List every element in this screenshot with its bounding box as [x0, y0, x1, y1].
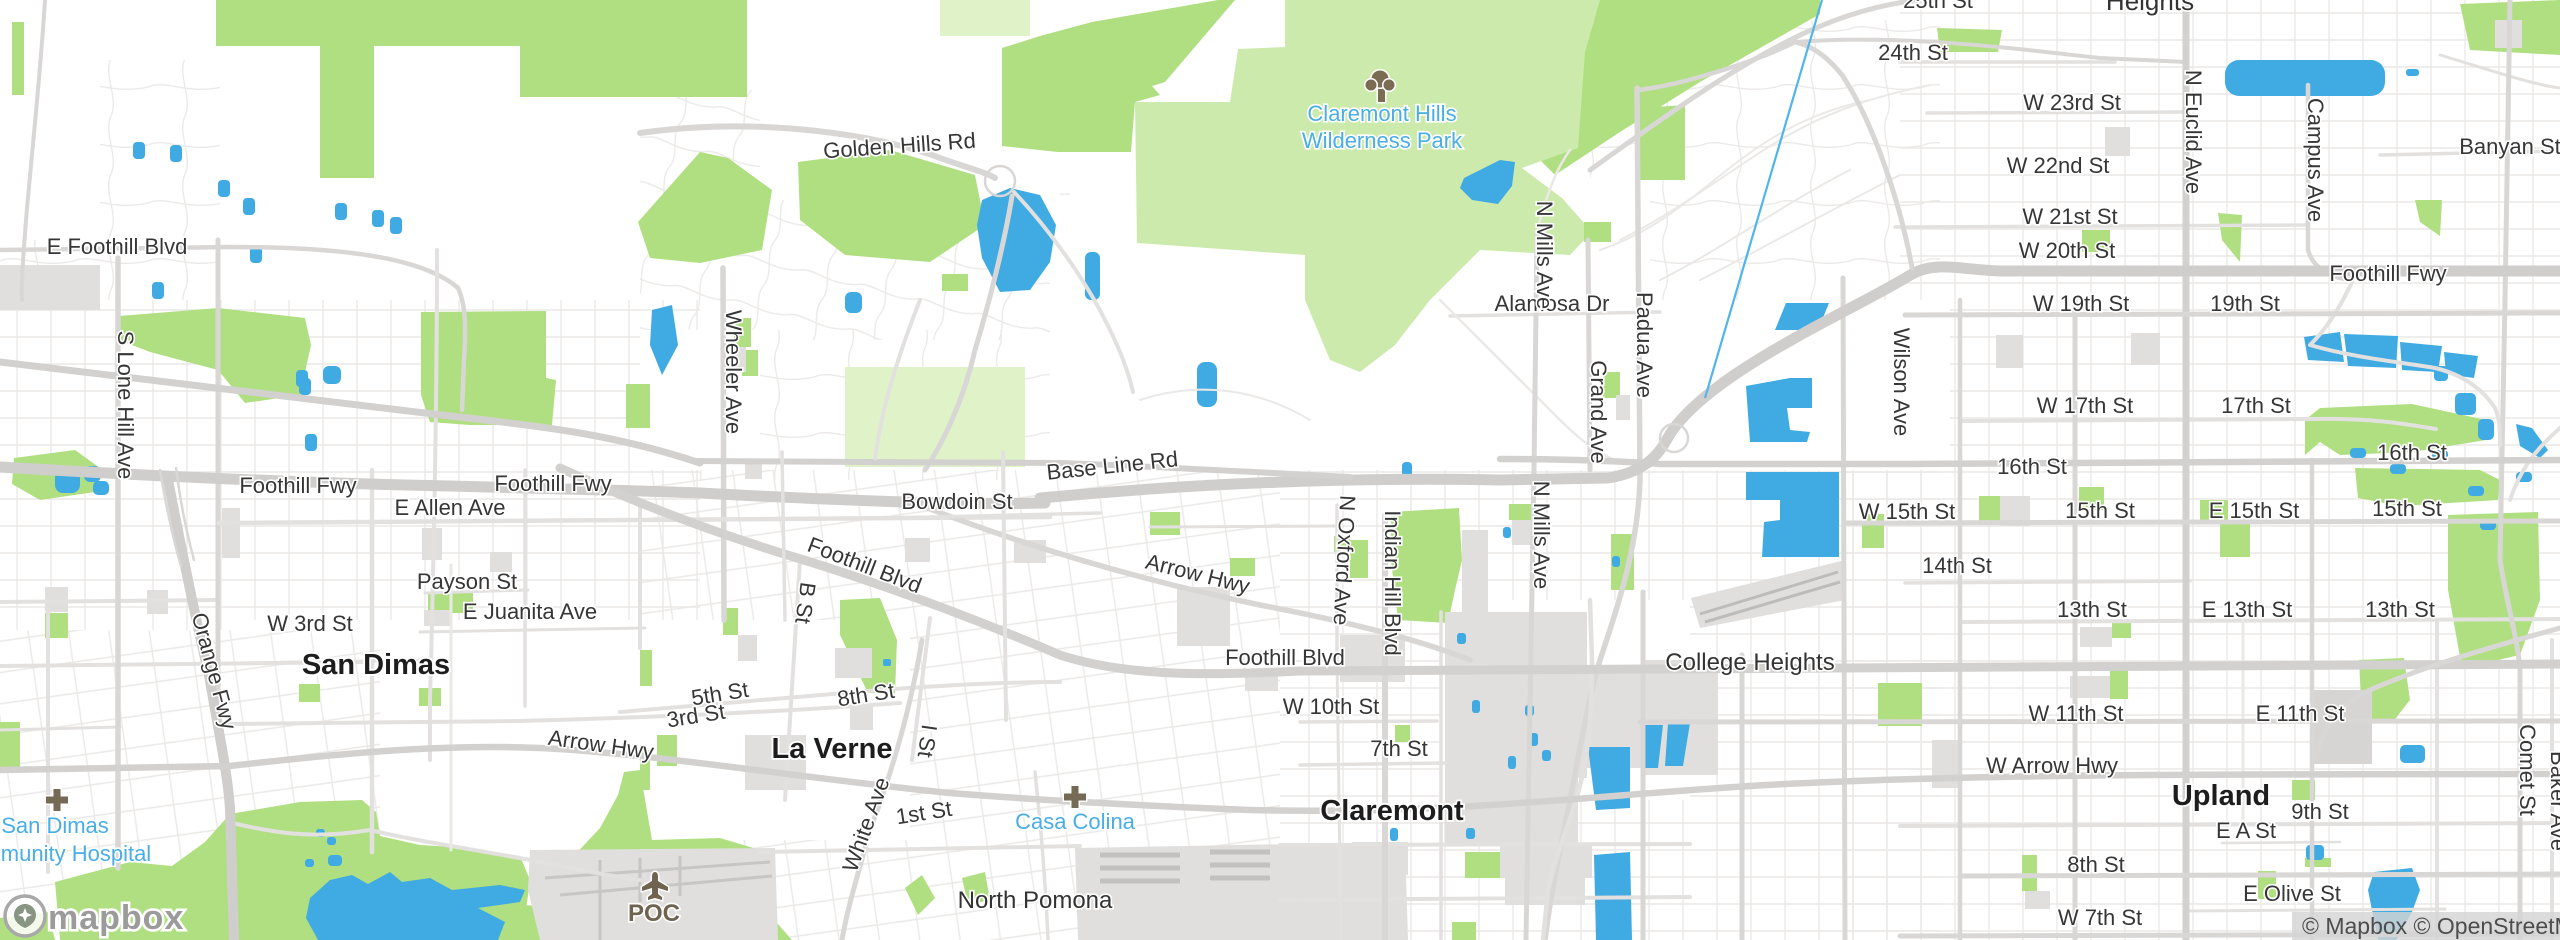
svg-text:W 20th St: W 20th St: [2019, 238, 2116, 263]
svg-text:Comet St: Comet St: [2515, 724, 2540, 816]
svg-text:17th St: 17th St: [2221, 393, 2291, 418]
svg-text:S Lone Hill Ave: S Lone Hill Ave: [113, 331, 138, 480]
svg-text:College Heights: College Heights: [1665, 649, 1834, 676]
svg-text:San Dimas: San Dimas: [1, 813, 109, 838]
svg-text:Foothill Fwy: Foothill Fwy: [239, 473, 356, 498]
svg-text:Payson St: Payson St: [417, 569, 517, 594]
svg-text:9th St: 9th St: [2291, 799, 2348, 824]
svg-text:Upland: Upland: [2172, 780, 2270, 812]
svg-text:I St: I St: [913, 723, 942, 759]
svg-text:W 19th St: W 19th St: [2033, 291, 2130, 316]
svg-text:W Arrow Hwy: W Arrow Hwy: [1986, 753, 2118, 778]
svg-text:Padua Ave: Padua Ave: [1632, 292, 1657, 398]
svg-text:E Olive St: E Olive St: [2243, 881, 2341, 906]
svg-text:Foothill Blvd: Foothill Blvd: [1225, 645, 1345, 670]
svg-text:La Verne: La Verne: [772, 733, 893, 765]
svg-text:W 23rd St: W 23rd St: [2023, 90, 2121, 115]
svg-text:7th St: 7th St: [1370, 736, 1427, 761]
svg-text:13th St: 13th St: [2057, 597, 2127, 622]
svg-text:Claremont: Claremont: [1320, 795, 1464, 827]
svg-text:19th St: 19th St: [2210, 291, 2280, 316]
svg-text:E A St: E A St: [2216, 818, 2276, 843]
svg-text:Foothill Fwy: Foothill Fwy: [2329, 261, 2446, 286]
svg-text:W 21st St: W 21st St: [2022, 204, 2117, 229]
svg-text:Baker Ave: Baker Ave: [2546, 751, 2560, 851]
svg-text:E Allen Ave: E Allen Ave: [395, 495, 506, 520]
svg-text:North Pomona: North Pomona: [958, 887, 1113, 914]
svg-text:San Dimas: San Dimas: [302, 649, 450, 681]
svg-text:E 13th St: E 13th St: [2202, 597, 2293, 622]
svg-text:E 11th St: E 11th St: [2256, 701, 2345, 726]
svg-text:N Mills Ave: N Mills Ave: [1529, 481, 1554, 589]
svg-text:Bowdoin St: Bowdoin St: [901, 489, 1012, 514]
svg-text:N Euclid Ave: N Euclid Ave: [2181, 70, 2206, 194]
svg-text:W 10th St: W 10th St: [1283, 694, 1380, 719]
svg-text:Wilderness Park: Wilderness Park: [1302, 128, 1463, 153]
svg-text:Foothill Fwy: Foothill Fwy: [494, 471, 611, 496]
svg-text:Wheeler Ave: Wheeler Ave: [721, 310, 746, 434]
svg-text:Indian Hill Blvd: Indian Hill Blvd: [1380, 510, 1405, 656]
svg-text:W 17th St: W 17th St: [2037, 393, 2134, 418]
svg-text:24th St: 24th St: [1878, 40, 1948, 65]
svg-text:E Juanita Ave: E Juanita Ave: [463, 599, 597, 624]
svg-text:16th St: 16th St: [1997, 454, 2067, 479]
svg-text:Wilson Ave: Wilson Ave: [1889, 328, 1914, 436]
svg-text:15th St: 15th St: [2372, 496, 2442, 521]
svg-text:E 15th St: E 15th St: [2209, 498, 2300, 523]
svg-text:W 11th St: W 11th St: [2029, 701, 2124, 726]
svg-text:W 7th St: W 7th St: [2058, 905, 2142, 930]
svg-text:Grand Ave: Grand Ave: [1586, 360, 1611, 464]
svg-text:14th St: 14th St: [1922, 553, 1992, 578]
svg-text:© Mapbox © OpenStreetMap: © Mapbox © OpenStreetMap: [2302, 913, 2560, 939]
svg-text:POC: POC: [628, 900, 680, 927]
svg-text:N Mills Ave: N Mills Ave: [1532, 201, 1557, 309]
svg-text:Claremont Hills: Claremont Hills: [1307, 101, 1456, 126]
svg-text:E Foothill Blvd: E Foothill Blvd: [47, 234, 188, 259]
svg-text:W 3rd St: W 3rd St: [267, 611, 353, 636]
svg-text:Banyan St: Banyan St: [2459, 134, 2560, 159]
svg-text:mapbox: mapbox: [48, 899, 184, 937]
svg-text:8th St: 8th St: [2067, 852, 2124, 877]
svg-text:13th St: 13th St: [2365, 597, 2435, 622]
svg-text:16th St: 16th St: [2377, 440, 2447, 465]
svg-text:W 15th St: W 15th St: [1859, 499, 1956, 524]
svg-text:15th St: 15th St: [2065, 498, 2135, 523]
svg-text:munity Hospital: munity Hospital: [1, 841, 151, 866]
svg-text:25th St: 25th St: [1903, 0, 1973, 13]
svg-text:Casa Colina: Casa Colina: [1015, 809, 1136, 834]
svg-text:Heights: Heights: [2106, 0, 2194, 16]
svg-text:W 22nd St: W 22nd St: [2007, 153, 2110, 178]
svg-text:Campus Ave: Campus Ave: [2303, 98, 2328, 222]
